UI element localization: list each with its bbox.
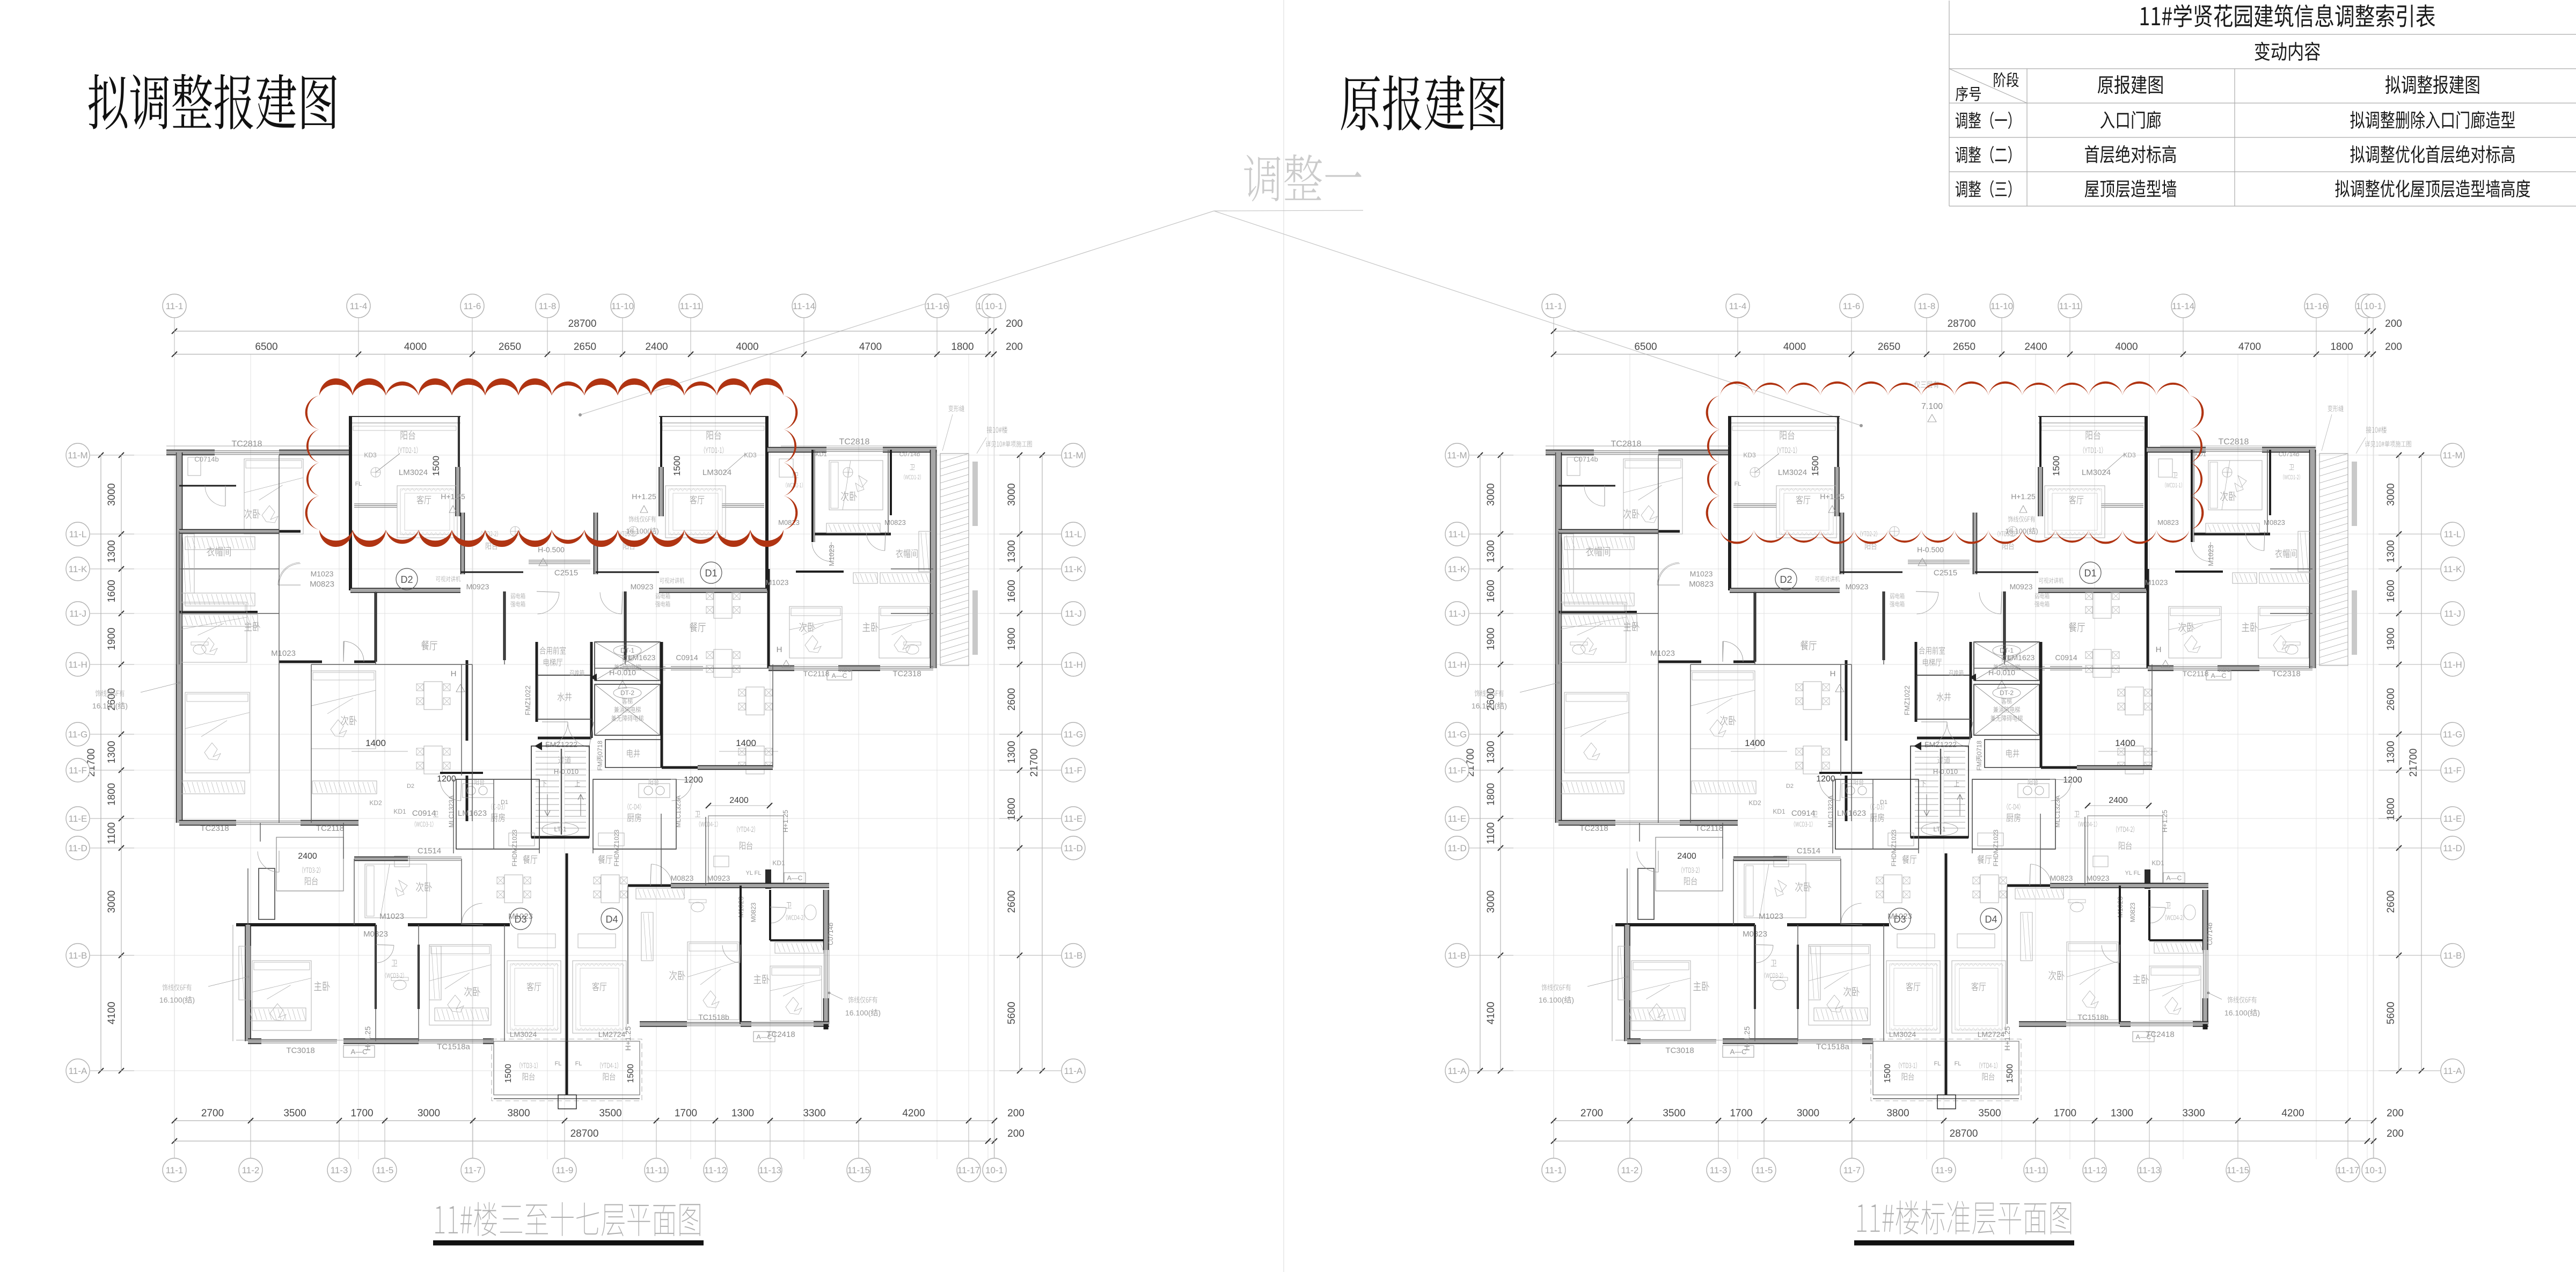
svg-text:7.100: 7.100	[1921, 402, 1943, 411]
